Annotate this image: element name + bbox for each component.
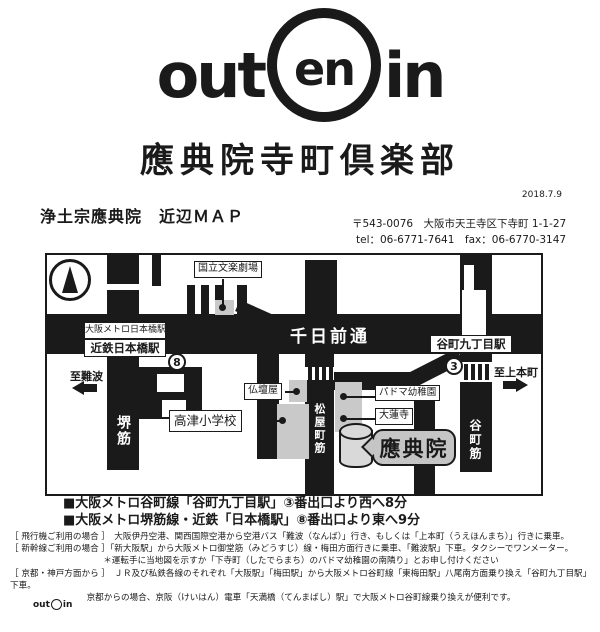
crosswalk-stripe: [464, 364, 468, 380]
label-metro-nipponbashi: 大阪メトロ日本橋駅: [84, 322, 166, 339]
exit-8-badge: 8: [168, 353, 186, 371]
date-label: 2018.7.9: [522, 190, 562, 200]
cross-street-gap: [107, 284, 139, 290]
connector-line: [222, 279, 224, 305]
road-matsuyamachi-north: [305, 260, 337, 315]
access-bullet-tanimachi: ■大阪メトロ谷町線「谷町九丁目駅」③番出口より西へ8分: [63, 496, 420, 513]
arrow-right-icon: [503, 378, 528, 392]
connector-line: [344, 418, 375, 420]
logo-text-in: in: [384, 23, 443, 107]
marker-kozu-school: [279, 417, 286, 424]
note-kyoto-kobe: ［ 京都・神戸方面から ］ ＪＲ及び私鉄各線のそれぞれ「大阪駅」「梅田駅」から大…: [10, 568, 592, 592]
north-arrow-icon: [62, 266, 78, 293]
marker-dairenji: [340, 415, 347, 422]
label-butsudanya: 仏壇屋: [244, 383, 282, 400]
footer-logo-circle-icon: [51, 599, 62, 610]
station-platform: [462, 290, 486, 335]
crosswalk-stripe: [485, 364, 489, 380]
crosswalk-stripe: [308, 367, 312, 380]
label-padoma-kindergarten: パドマ幼稚園: [375, 385, 440, 401]
logo-text-en: en: [294, 38, 354, 92]
side-street: [187, 285, 195, 315]
side-street: [152, 255, 161, 286]
logo-circle-icon: en: [267, 8, 381, 122]
note-airplane: ［ 飛行機ご利用の場合 ］ 大阪伊丹空港、関西国際空港から空港バス「難波（なんば…: [10, 531, 592, 543]
label-dairenji: 大蓮寺: [375, 408, 413, 425]
vicinity-map: 千日前通 堺筋 松屋町筋 谷町筋: [45, 253, 543, 496]
crosswalk-stripe: [322, 367, 326, 380]
crosswalk-stripe: [471, 364, 475, 380]
compass-north-icon: [49, 259, 91, 301]
arrow-left-icon: [72, 381, 97, 395]
logo-text-out: out: [157, 23, 264, 107]
footer-logo: out in: [33, 599, 72, 610]
outenin-building-roof-icon: [339, 423, 373, 440]
access-summary: ■大阪メトロ谷町線「谷町九丁目駅」③番出口より西へ8分 ■大阪メトロ堺筋線・近鉄…: [63, 496, 420, 529]
access-notes: ［ 飛行機ご利用の場合 ］ 大阪伊丹空港、関西国際空港から空港バス「難波（なんば…: [10, 531, 592, 604]
map-heading: 浄土宗應典院 近辺ＭＡＰ: [40, 203, 244, 227]
building-kozu-school: [277, 404, 309, 459]
road-median: [464, 265, 474, 290]
road-label-senichimae: 千日前通: [290, 322, 370, 347]
crosswalk-stripe: [478, 364, 482, 380]
note-taxi: ＊運転手に当地図を示すか「下寺町（したでらまち）のパドマ幼稚園の南隣り」とお申し…: [10, 555, 592, 567]
road-label-matsuyamachi: 松屋町筋: [311, 403, 327, 455]
tel-fax: tel：06-6771-7641 fax：06-6770-3147: [356, 232, 566, 247]
outenin-label-bubble: 應典院: [372, 429, 456, 466]
side-street: [201, 285, 209, 315]
side-street: [257, 354, 279, 459]
marker-butsudanya: [293, 388, 300, 395]
note-kyoto: 京都からの場合、京阪（けいはん）電車「天満橋（てんまばし）駅」で大阪メトロ谷町線…: [10, 592, 592, 604]
label-tanimachi9-station: 谷町九丁目駅: [430, 335, 512, 353]
exit-3-badge: 3: [445, 357, 463, 375]
label-bunraku-theater: 国立文楽劇場: [194, 261, 262, 278]
connector-line: [259, 420, 281, 422]
footer-logo-out: out: [33, 600, 50, 610]
marker-bunraku: [219, 304, 226, 311]
crosswalk-stripe: [329, 367, 333, 380]
road-label-tanimachisuji: 谷町筋: [467, 419, 484, 461]
access-bullet-sakaisuji: ■大阪メトロ堺筋線・近鉄「日本橋駅」⑧番出口より東へ9分: [63, 513, 420, 530]
road-label-sakaisuji: 堺筋: [113, 415, 133, 447]
marker-padoma: [340, 393, 347, 400]
postal-address: 〒543-0076 大阪市天王寺区下寺町 1-1-27: [352, 216, 566, 231]
flyer-page: out en in 應典院寺町倶楽部 2018.7.9 浄土宗應典院 近辺ＭＡＰ…: [0, 0, 600, 632]
crosswalk-stripe: [315, 367, 319, 380]
footer-logo-in: in: [63, 600, 73, 610]
label-kozu-elementary: 高津小学校: [169, 410, 242, 432]
label-kintetsu-nipponbashi: 近鉄日本橋駅: [84, 339, 166, 357]
connector-line: [344, 396, 375, 398]
page-title: 應典院寺町倶楽部: [0, 133, 600, 182]
note-shinkansen: ［ 新幹線ご利用の場合 ］「新大阪駅」から大阪メトロ御堂筋（みどうすじ）線・梅田…: [10, 543, 592, 555]
city-block: [157, 374, 184, 392]
outenin-logo: out en in: [0, 8, 600, 122]
